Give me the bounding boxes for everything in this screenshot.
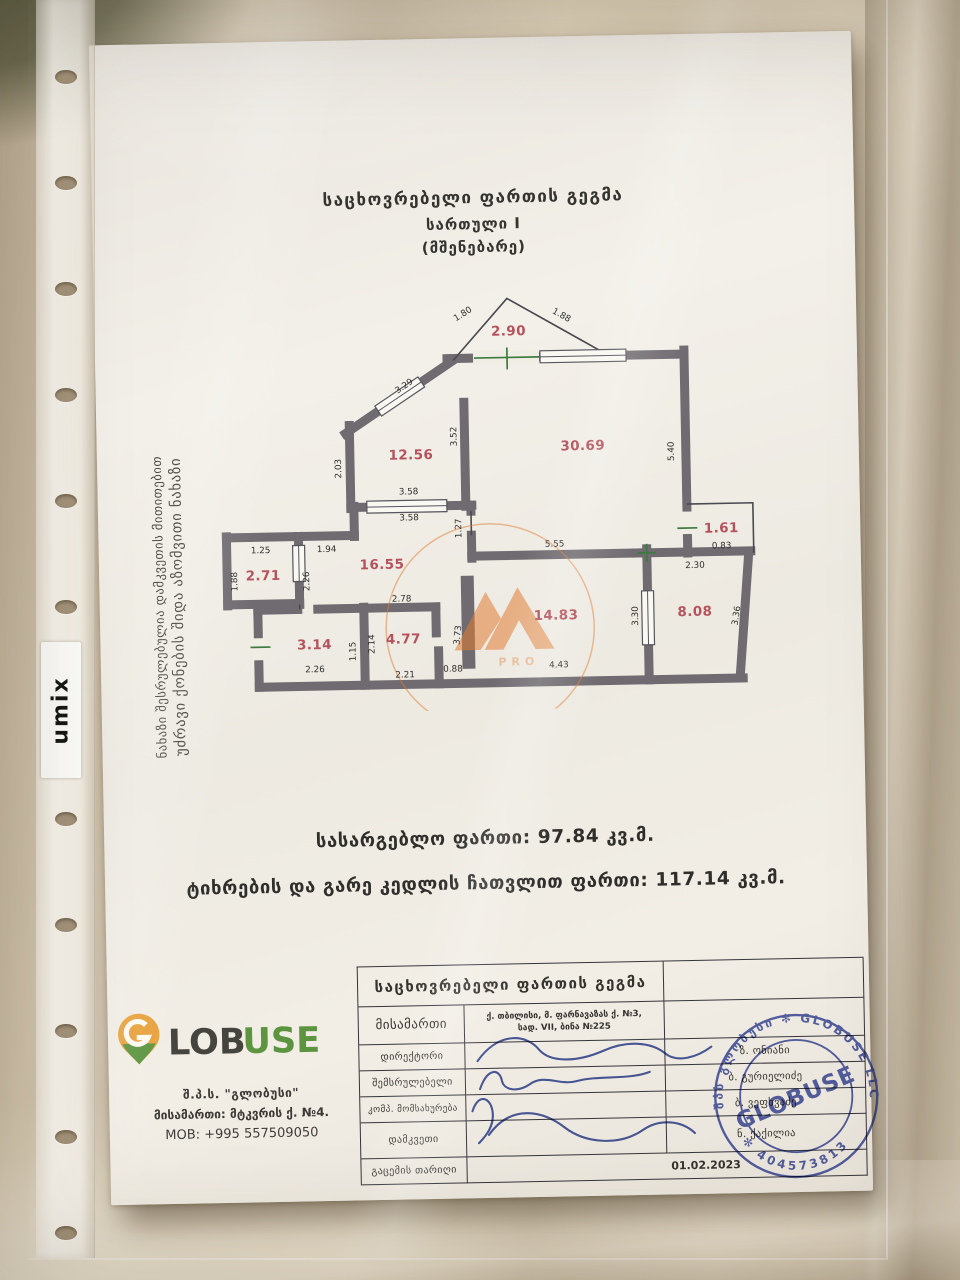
company-address: მისამართი: მტკვრის ქ. №4. — [115, 1104, 367, 1123]
dimension-label: 2.30 — [685, 561, 705, 571]
document-title: საცხოვრებელი ფართის გეგმა სართული I (მშე… — [92, 181, 855, 264]
room-area-label: 14.83 — [533, 607, 578, 624]
dimension-label: 2.03 — [334, 459, 344, 479]
globuse-pin-icon — [118, 1013, 160, 1064]
photo-of-floor-plan-document: საცხოვრებელი ფართის გეგმა სართული I (მშე… — [0, 0, 960, 1280]
address-value: ქ. თბილისი, მ. ფარნავაზას ქ. №3, სად. VI… — [464, 1002, 665, 1044]
room-area-label: 3.14 — [297, 637, 332, 654]
room-area-label: 2.71 — [246, 568, 281, 585]
dimension-label: 5.55 — [545, 539, 565, 549]
watermark-text: PRO — [498, 655, 539, 669]
total-area-label: ტიხრების და გარე კედლის ჩათვლით ფართი: — [186, 870, 648, 900]
dimension-label: 2.26 — [305, 665, 325, 675]
dimension-label: 3.52 — [449, 427, 459, 447]
dimension-label: 3.58 — [399, 513, 419, 523]
table-header: საცხოვრებელი ფართის გეგმა — [358, 962, 665, 1008]
side-note-line-1: უძრავი ქონების შიდა აზომვითი ნახაზი — [166, 372, 191, 842]
side-annotation: ნახაზი შესრულებულია დამკვეთის მითითებით … — [147, 371, 202, 842]
room-area-label: 30.69 — [560, 438, 605, 455]
executor-signature-cell — [466, 1066, 666, 1096]
address-label: მისამართი — [358, 1005, 465, 1045]
dimension-label: 1.15 — [348, 642, 358, 662]
room-area-label: 8.08 — [677, 604, 712, 621]
executor-label: შემსრულებელი — [360, 1069, 466, 1097]
dimension-label: 2.21 — [395, 670, 415, 680]
useful-area-label: სასარგებლო ფართი: — [316, 827, 531, 852]
brand-text-lob: LOB — [167, 1021, 246, 1063]
total-area-line: ტიხრების და გარე კედლის ჩათვლით ფართი: 1… — [105, 866, 867, 902]
dimension-label: 1.88 — [550, 307, 572, 325]
floor-plan-drawing: PRO 2.9012.5630.691.612.7116.553.144.771… — [212, 285, 765, 715]
brand-text-use: USE — [242, 1020, 321, 1062]
room-area-label: 12.56 — [388, 447, 433, 464]
room-area-label: 2.90 — [491, 323, 526, 340]
dimension-label: 1.80 — [452, 305, 474, 324]
area-summary: სასარგებლო ფართი: 97.84 კვ.მ. ტიხრების დ… — [104, 821, 867, 902]
company-name: შ.პ.ს. "გლობუსი" — [115, 1084, 367, 1103]
room-area-label: 4.77 — [386, 631, 421, 648]
useful-area-line: სასარგებლო ფართი: 97.84 კვ.მ. — [104, 821, 866, 857]
room-area-label: 1.61 — [704, 520, 739, 537]
dimension-label: 0.88 — [443, 664, 463, 674]
dimension-label: 3.30 — [631, 606, 641, 626]
company-block: LOB USE შ.პ.ს. "გლობუსი" მისამართი: მტკვ… — [113, 1006, 368, 1144]
dimension-label: 2.78 — [392, 594, 412, 604]
dimension-label: 3.58 — [399, 487, 419, 497]
director-label: დირექტორი — [359, 1043, 465, 1071]
room-area-label: 16.55 — [359, 556, 404, 573]
dimension-label: 5.40 — [667, 441, 677, 461]
table-empty-cell — [664, 958, 865, 1002]
stamp-center-text: GLOBUSE — [732, 1061, 859, 1135]
dimension-label: 3.73 — [452, 625, 464, 646]
customer-signature-cell — [467, 1118, 668, 1158]
dimension-label: 1.88 — [230, 572, 240, 592]
total-area-value: 117.14 კვ.მ. — [655, 867, 786, 890]
useful-area-value: 97.84 კვ.მ. — [538, 825, 655, 848]
computer-service-signature-cell — [466, 1092, 666, 1122]
customer-label: დამკვეთი — [361, 1121, 468, 1159]
dimension-label: 0.83 — [712, 541, 732, 551]
dimension-label: 1.27 — [454, 519, 464, 539]
computer-service-label: კომპ. მომსახურება — [360, 1095, 466, 1123]
company-stamp: შპს გლობუსი ✻ GLOBUSE LLC ✻ 404573813 ✻ … — [702, 1002, 889, 1189]
address-line-2: სად. VII, ბინა №225 — [518, 1021, 611, 1034]
issue-date-label: გაცემის თარიღი — [361, 1157, 467, 1185]
director-signature-cell — [465, 1040, 665, 1070]
globuse-logo: LOB USE — [113, 1006, 373, 1071]
dimension-label: 2.14 — [367, 634, 377, 654]
dimension-label: 4.43 — [549, 660, 569, 670]
dimension-label: 1.25 — [251, 546, 271, 556]
floor-plan-paper: საცხოვრებელი ფართის გეგმა სართული I (მშე… — [89, 31, 873, 1205]
company-phone: MOB: +995 557509050 — [116, 1124, 368, 1144]
dimension-label: 2.26 — [302, 571, 312, 591]
dimension-label: 1.94 — [317, 545, 337, 555]
